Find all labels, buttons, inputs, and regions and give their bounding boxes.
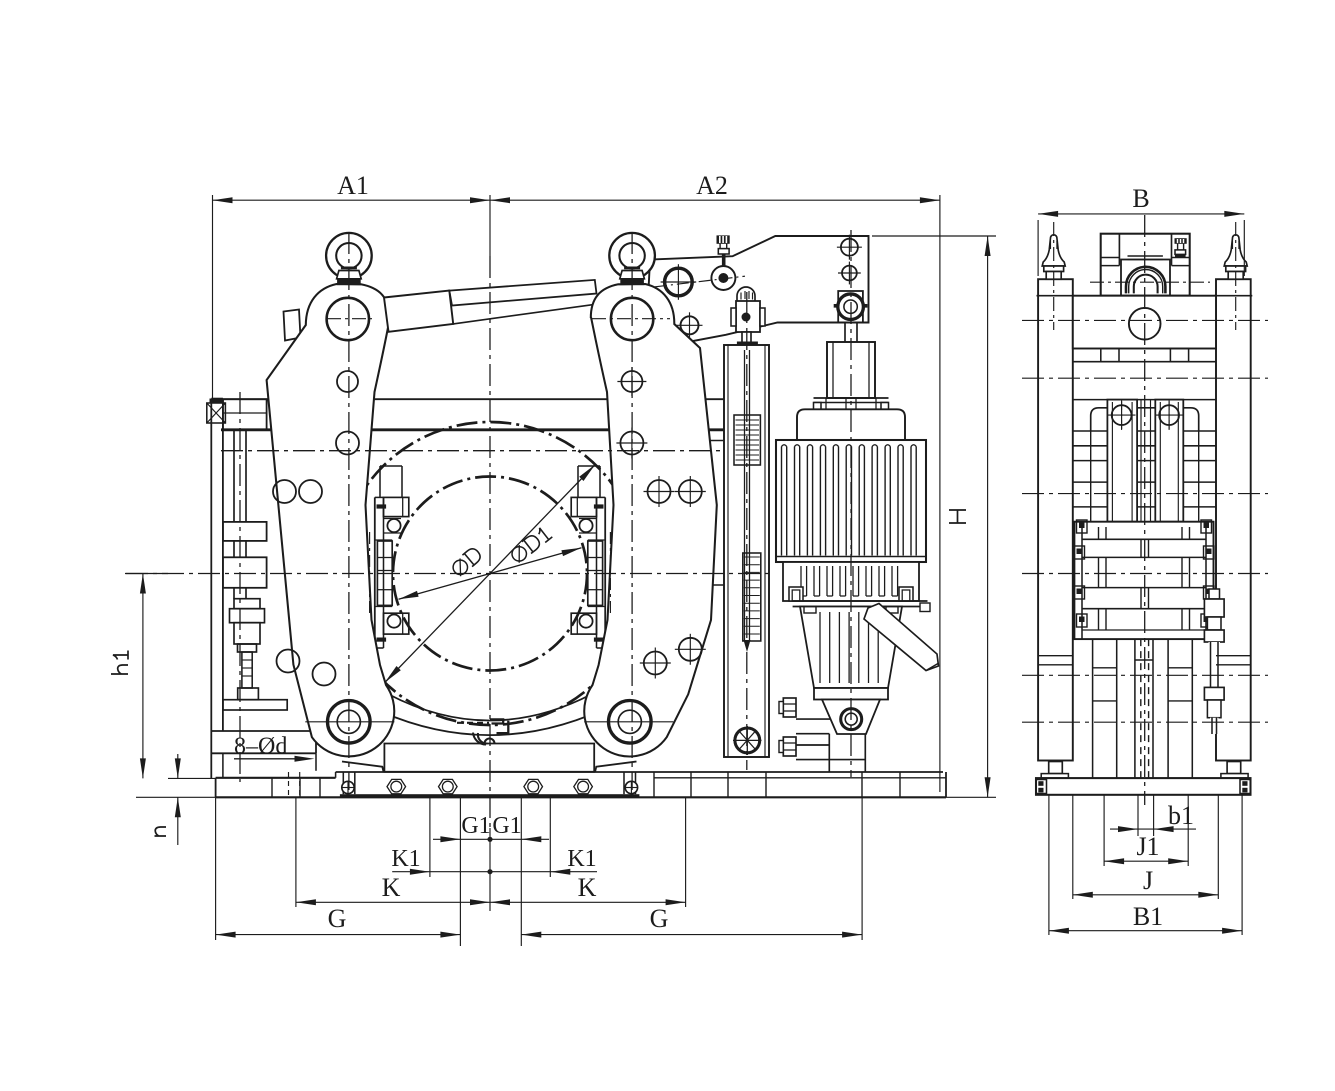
- svg-text:G1: G1: [492, 813, 521, 839]
- svg-text:G: G: [328, 904, 347, 933]
- svg-text:A1: A1: [337, 171, 369, 200]
- svg-text:J1: J1: [1136, 832, 1159, 861]
- svg-text:J: J: [1143, 866, 1153, 895]
- svg-text:8–Ød: 8–Ød: [234, 734, 287, 760]
- svg-text:B1: B1: [1133, 902, 1163, 931]
- svg-text:A2: A2: [696, 171, 728, 200]
- svg-text:K1: K1: [391, 846, 420, 872]
- svg-text:K: K: [578, 873, 597, 902]
- svg-text:b1: b1: [1168, 801, 1194, 830]
- svg-text:G1: G1: [461, 813, 490, 839]
- svg-text:K1: K1: [567, 846, 596, 872]
- svg-text:B: B: [1132, 184, 1149, 213]
- svg-text:G: G: [650, 904, 669, 933]
- svg-text:K: K: [382, 873, 401, 902]
